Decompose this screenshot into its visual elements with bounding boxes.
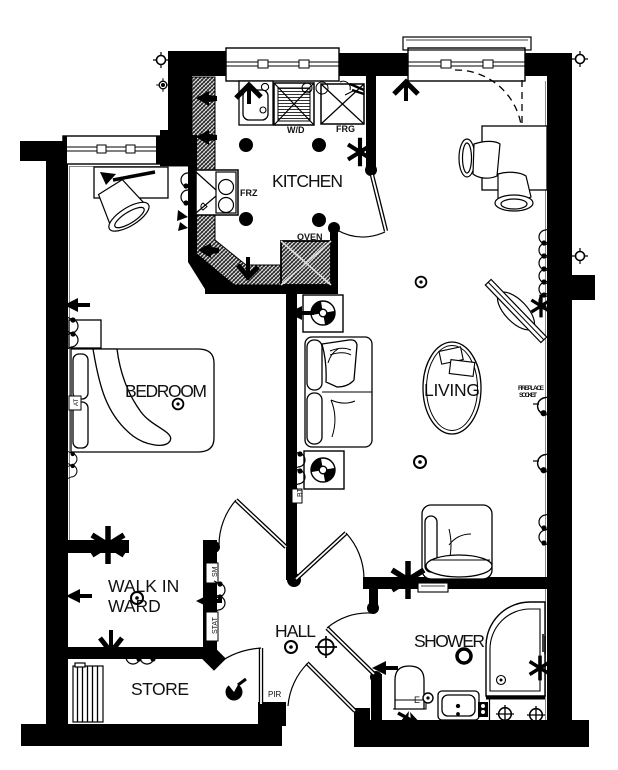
svg-text:E: E [414,695,420,705]
svg-text:FIREPLACE: FIREPLACE [518,385,545,392]
svg-text:KITCHEN: KITCHEN [272,171,343,191]
svg-text:SM: SM [212,566,219,577]
svg-text:STORE: STORE [131,679,189,699]
svg-text:STAT: STAT [212,616,219,634]
svg-text:SHOWER: SHOWER [414,631,485,651]
svg-text:W/D: W/D [287,125,305,135]
svg-text:BT: BT [297,487,304,497]
svg-text:SOCKET: SOCKET [519,392,537,399]
svg-text:FRZ: FRZ [240,188,258,198]
svg-text:HALL: HALL [275,621,316,641]
svg-text:AT: AT [74,398,80,406]
svg-text:WALK IN: WALK IN [108,576,179,596]
svg-text:PIR: PIR [268,690,282,699]
svg-text:BEDROOM: BEDROOM [125,381,207,401]
svg-text:FRG: FRG [336,124,355,134]
svg-text:OVEN: OVEN [297,232,323,242]
svg-text:WARD: WARD [108,596,161,616]
svg-text:LIVING: LIVING [424,380,480,400]
